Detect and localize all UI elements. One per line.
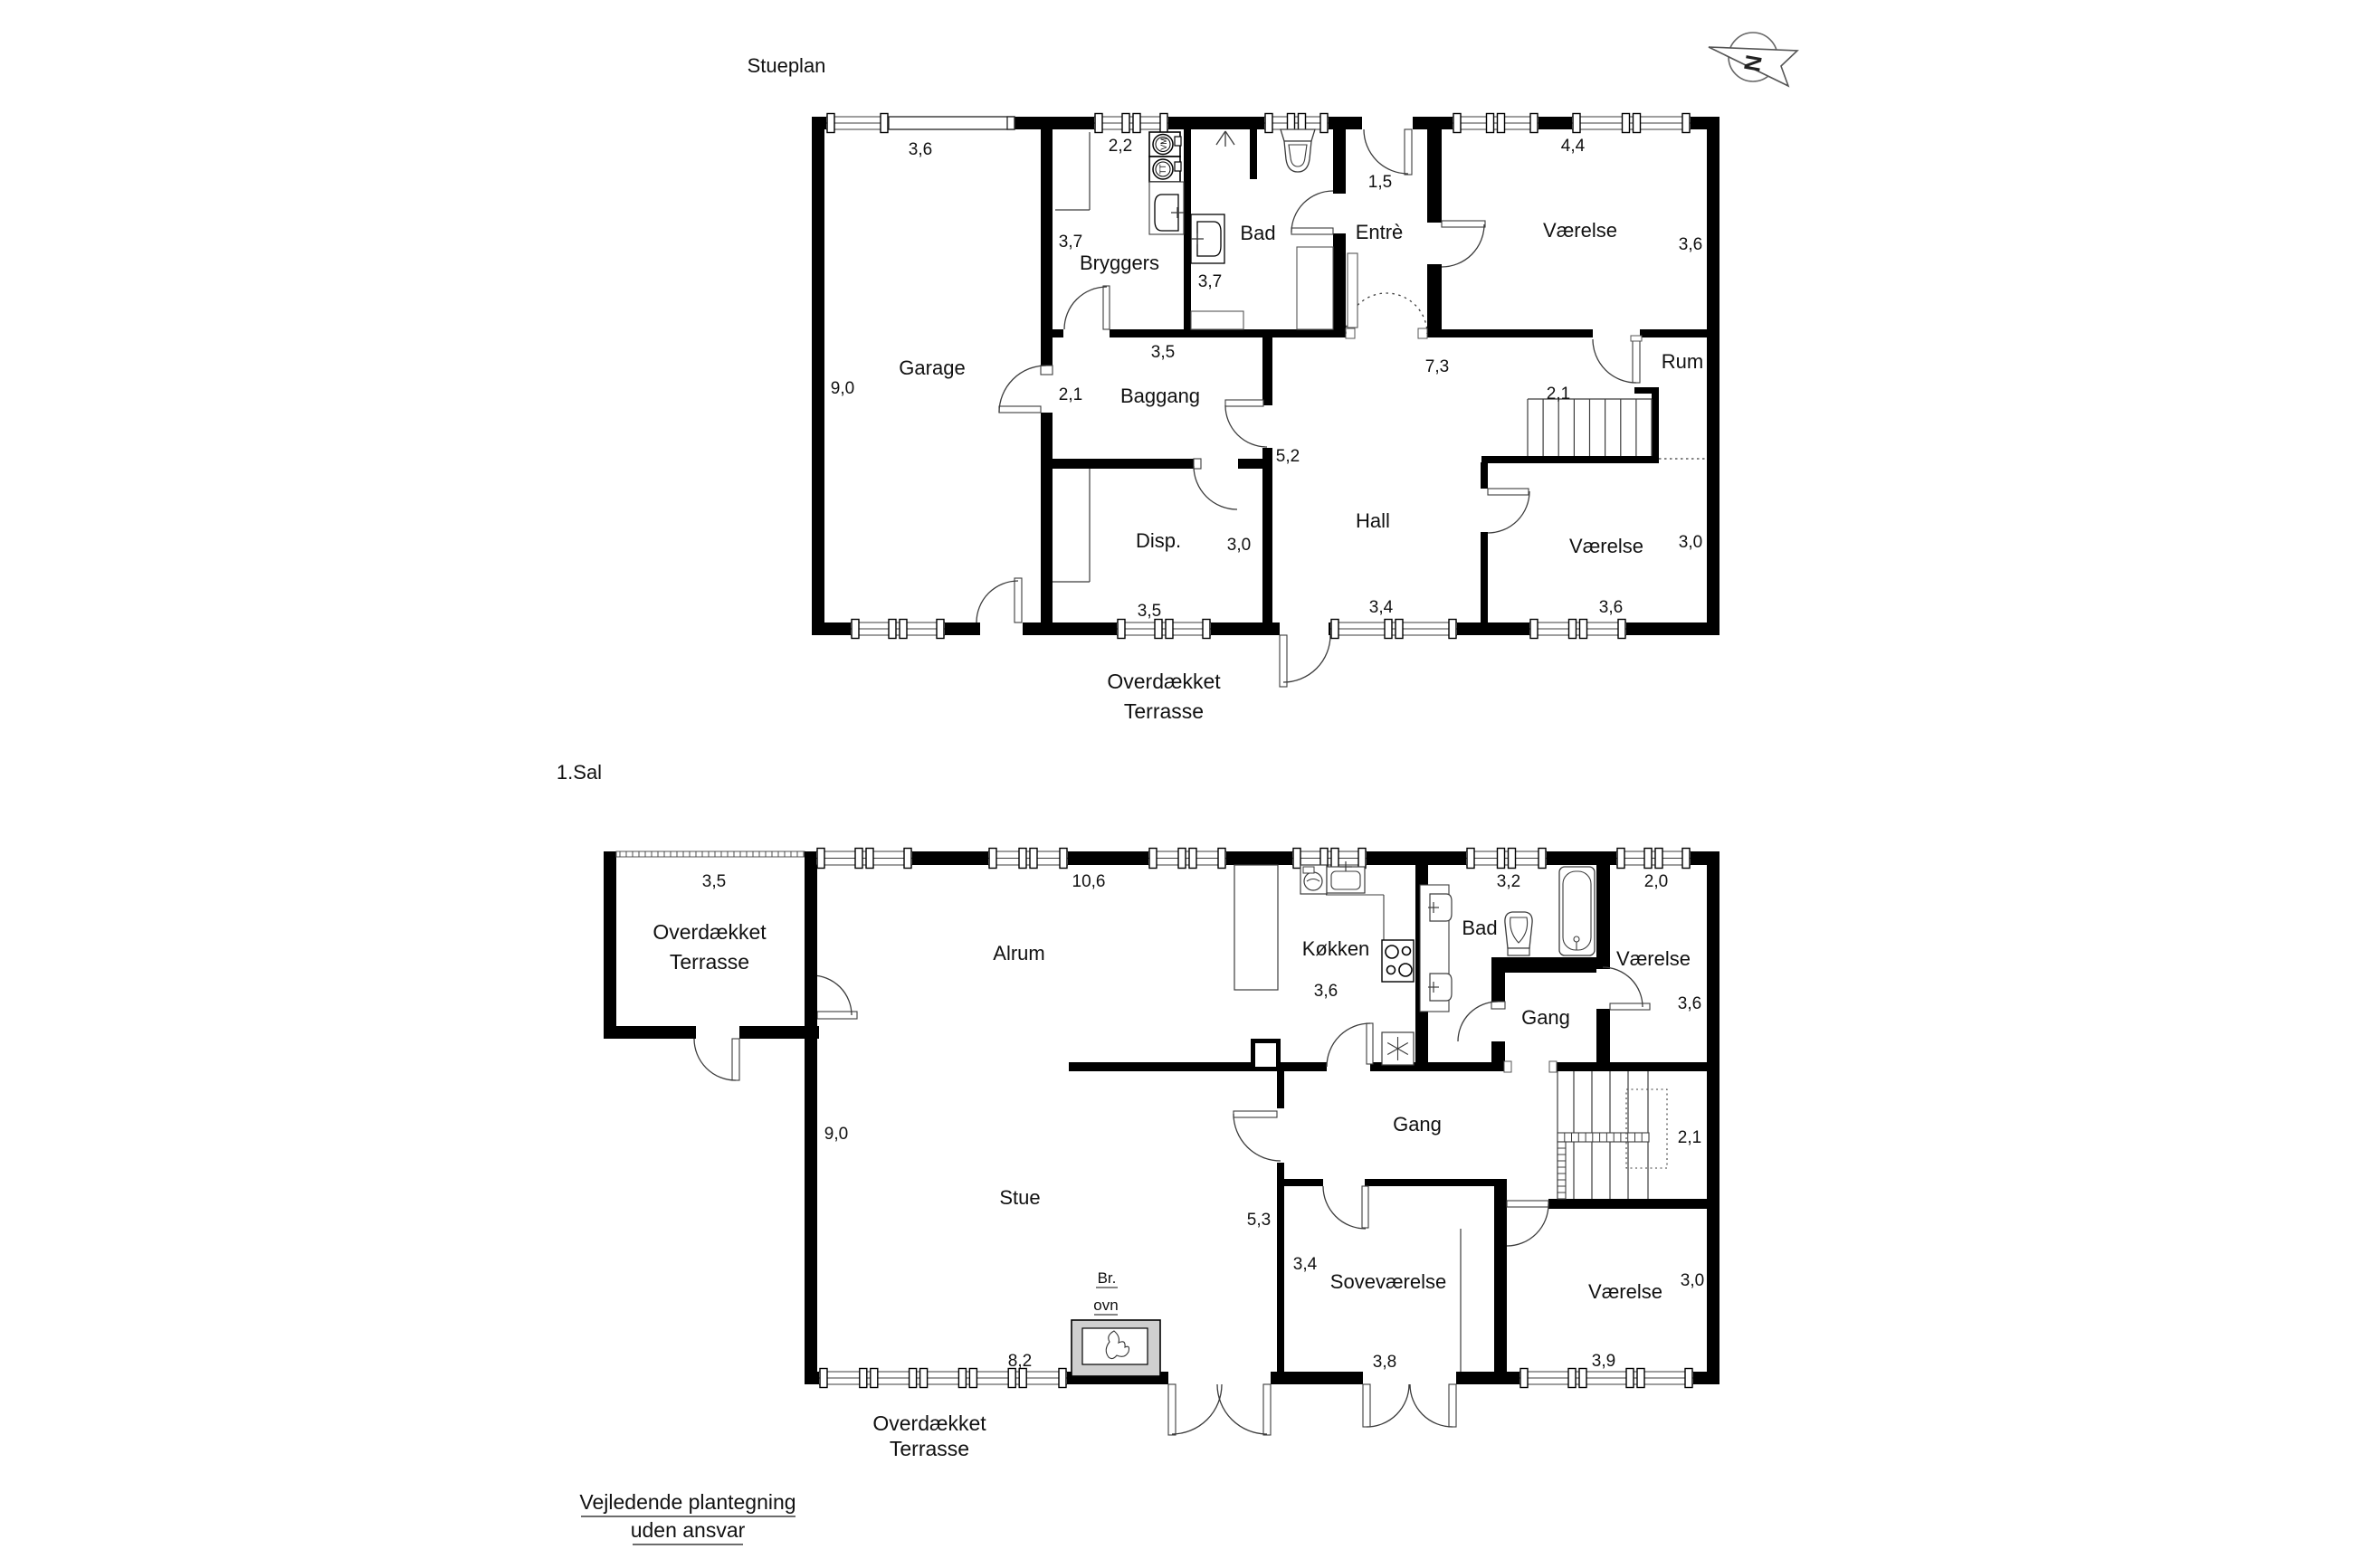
svg-text:2,1: 2,1 [1059,385,1082,404]
svg-text:3,6: 3,6 [1599,598,1623,617]
svg-text:Værelse: Værelse [1616,947,1691,970]
svg-text:3,0: 3,0 [1679,533,1702,552]
svg-text:5,3: 5,3 [1247,1211,1271,1230]
svg-text:Stue: Stue [999,1186,1040,1209]
svg-text:Entrè: Entrè [1356,221,1404,243]
svg-text:3,6: 3,6 [1678,994,1701,1013]
svg-text:3,2: 3,2 [1497,872,1520,891]
svg-text:3,6: 3,6 [909,140,932,159]
svg-text:3,0: 3,0 [1227,536,1251,555]
svg-text:8,2: 8,2 [1008,1352,1032,1371]
svg-text:Værelse: Værelse [1588,1280,1662,1303]
svg-text:Værelse: Værelse [1543,219,1617,242]
svg-text:3,5: 3,5 [1151,343,1175,362]
svg-text:Alrum: Alrum [993,942,1044,965]
svg-text:3,4: 3,4 [1293,1255,1318,1274]
svg-text:2,1: 2,1 [1678,1128,1701,1147]
svg-text:Disp.: Disp. [1136,529,1181,552]
svg-text:Hall: Hall [1356,509,1390,532]
svg-text:3,4: 3,4 [1369,598,1394,617]
svg-text:VM: VM [1159,138,1168,150]
svg-text:Terrasse: Terrasse [670,950,749,974]
svg-text:Køkken: Køkken [1302,937,1370,960]
svg-text:3,9: 3,9 [1592,1352,1615,1371]
svg-text:1,5: 1,5 [1368,173,1392,192]
svg-text:2,1: 2,1 [1547,385,1570,404]
svg-text:5,2: 5,2 [1276,447,1300,466]
svg-text:TT: TT [1158,164,1167,174]
svg-text:Rum: Rum [1662,350,1703,373]
svg-text:3,0: 3,0 [1681,1271,1704,1290]
svg-text:Overdækket: Overdækket [1107,670,1221,693]
svg-text:1.Sal: 1.Sal [557,761,602,784]
svg-text:3,5: 3,5 [702,872,726,891]
svg-text:Bad: Bad [1462,917,1497,939]
svg-text:3,8: 3,8 [1373,1353,1396,1372]
svg-text:Terrasse: Terrasse [890,1437,969,1460]
svg-text:Vejledende plantegning: Vejledende plantegning [579,1490,795,1514]
svg-text:3,6: 3,6 [1679,235,1702,254]
svg-text:Garage: Garage [899,356,965,379]
svg-text:Soveværelse: Soveværelse [1330,1270,1446,1293]
svg-text:2,0: 2,0 [1644,872,1668,891]
svg-text:ovn: ovn [1093,1297,1118,1314]
svg-text:9,0: 9,0 [824,1125,848,1144]
svg-text:10,6: 10,6 [1072,872,1106,891]
svg-text:3,7: 3,7 [1059,233,1082,252]
svg-text:uden ansvar: uden ansvar [631,1518,746,1542]
svg-text:9,0: 9,0 [831,379,854,398]
svg-text:Bryggers: Bryggers [1080,252,1159,274]
svg-text:Baggang: Baggang [1120,385,1200,407]
svg-text:Overdækket: Overdækket [653,920,767,944]
svg-text:4,4: 4,4 [1561,137,1586,156]
svg-text:Gang: Gang [1521,1006,1570,1029]
svg-text:3,5: 3,5 [1138,602,1161,621]
svg-text:Overdækket: Overdækket [872,1411,986,1435]
svg-text:Stueplan: Stueplan [748,54,826,77]
svg-text:7,3: 7,3 [1425,357,1449,376]
svg-text:Gang: Gang [1393,1113,1442,1136]
svg-text:Terrasse: Terrasse [1124,699,1204,723]
svg-text:3,7: 3,7 [1198,272,1222,291]
svg-text:Bad: Bad [1240,222,1275,244]
svg-text:3,6: 3,6 [1314,982,1338,1001]
svg-text:2,2: 2,2 [1109,137,1132,156]
svg-text:Br.: Br. [1098,1269,1117,1287]
svg-text:Værelse: Værelse [1569,535,1643,557]
